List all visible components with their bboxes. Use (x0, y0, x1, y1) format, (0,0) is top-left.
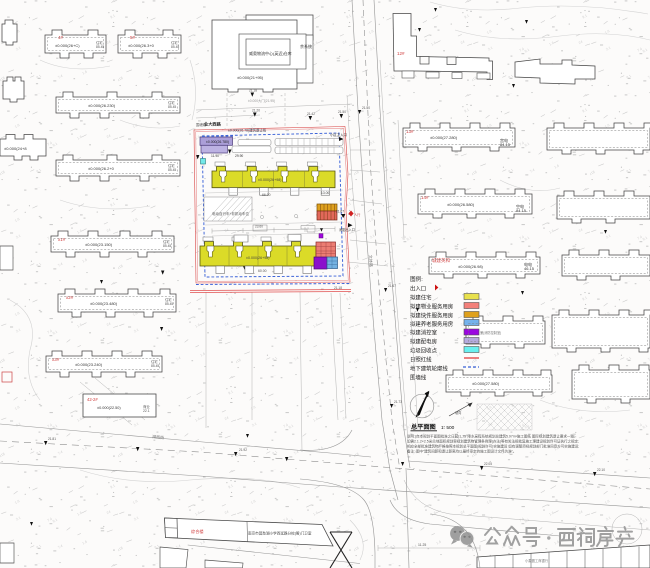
svg-text:拟建消控室: 拟建消控室 (410, 329, 438, 337)
svg-text:21.50: 21.50 (362, 106, 370, 110)
svg-text:垃圾回收点: 垃圾回收点 (410, 347, 438, 355)
svg-text:22.05: 22.05 (484, 462, 492, 466)
svg-text:拟建配电房: 拟建配电房 (410, 338, 437, 346)
svg-text:±0.000大门(21.95): ±0.000大门(21.95) (248, 98, 275, 103)
svg-text:11.90: 11.90 (211, 154, 219, 158)
svg-text:兼(消防控制室): 兼(消防控制室) (480, 330, 501, 335)
svg-text:13#: 13# (406, 129, 414, 134)
svg-text:±0.000(26+98): ±0.000(26+98) (246, 256, 269, 260)
svg-text:±0.000(26.580): ±0.000(26.580) (447, 202, 475, 207)
svg-text:出入口: 出入口 (410, 285, 426, 293)
svg-text:南京市莫愁湖小学西延路分校(筹)门卫室: 南京市莫愁湖小学西延路分校(筹)门卫室 (248, 531, 312, 536)
svg-text:拟建快件服务用房: 拟建快件服务用房 (410, 312, 453, 320)
svg-text:如需2.1.2×2.5米占地面积规划案规划建筑物管理条例理(: 如需2.1.2×2.5米占地面积规划案规划建筑物管理条例理(办法)等有关法规批复… (407, 439, 579, 444)
svg-text:±0.000(26.2+0: ±0.000(26.2+0 (88, 166, 115, 171)
svg-text:x3#: x3# (52, 357, 60, 362)
svg-text:±0.000(27.280): ±0.000(27.280) (430, 135, 458, 140)
svg-text:±0.000(26.780): ±0.000(26.780) (206, 140, 229, 144)
svg-text:±0.000(23.150): ±0.000(23.150) (85, 242, 113, 247)
svg-text:21.67: 21.67 (388, 284, 396, 288)
svg-text:说明:(自本规划平面图批准之日起)1.75°降水高程系统规划: 说明:(自本规划平面图批准之日起)1.75°降水高程系统规划总建筑5.97m²施… (407, 434, 575, 439)
svg-text:12#: 12# (397, 51, 405, 56)
svg-text:余系统: 余系统 (300, 43, 312, 49)
svg-text:地下建筑轮廓线: 地下建筑轮廓线 (410, 365, 448, 373)
svg-text:总平面图: 总平面图 (411, 423, 436, 431)
svg-text:人行: 人行 (354, 212, 361, 217)
svg-text:坡向: 坡向 (455, 410, 461, 415)
svg-text:拟建养老服务用房: 拟建养老服务用房 (410, 320, 453, 328)
svg-text:±0.000(26+C): ±0.000(26+C) (55, 43, 80, 48)
svg-text:±0.000(26.230): ±0.000(26.230) (88, 103, 116, 108)
svg-text:±0.000(26+98): ±0.000(26+98) (258, 178, 281, 182)
svg-text:拟建住宅: 拟建住宅 (410, 294, 432, 302)
svg-text:21.18: 21.18 (249, 89, 257, 93)
svg-text:湖西街: 湖西街 (152, 433, 164, 440)
svg-text:21.18: 21.18 (334, 286, 342, 290)
svg-text:综合楼: 综合楼 (191, 528, 204, 535)
svg-text:66.00: 66.00 (262, 193, 271, 197)
svg-text:22.10: 22.10 (597, 468, 605, 472)
svg-text:±0.000(22.50): ±0.000(22.50) (97, 406, 121, 410)
svg-text:11.25: 11.25 (418, 543, 426, 547)
svg-text:±0.000(26.98): ±0.000(26.98) (458, 264, 484, 269)
svg-text:±0.000(23.480): ±0.000(23.480) (90, 301, 118, 306)
svg-text:商业22.1: 商业22.1 (143, 404, 150, 413)
svg-text:威奥物流中心(英迈)仓库: 威奥物流中心(英迈)仓库 (249, 50, 292, 56)
svg-text:21.42: 21.42 (307, 112, 315, 116)
svg-text:消防出入口: 消防出入口 (339, 227, 355, 232)
svg-text:围墙线: 围墙线 (410, 374, 427, 382)
svg-text:图例:: 图例: (410, 275, 423, 283)
svg-text:±0.000(26.3+0: ±0.000(26.3+0 (128, 43, 155, 48)
svg-text:备注: 图中"建筑间距和退让距离均以最终审定的施工图设计文件: 备注: 图中"建筑间距和退让距离均以最终审定的施工图设计文件为准"。 (407, 449, 516, 454)
svg-text:电动自行车+非机动车位: 电动自行车+非机动车位 (212, 211, 250, 216)
svg-text:x2#: x2# (66, 295, 74, 300)
svg-text:±0.000(24+8: ±0.000(24+8 (4, 146, 27, 151)
svg-text:60.00: 60.00 (258, 269, 267, 273)
svg-text:城建英和: 城建英和 (432, 257, 450, 264)
svg-text:21.73: 21.73 (394, 400, 402, 404)
svg-text:文体路: 文体路 (368, 255, 375, 267)
svg-text:x1#: x1# (58, 237, 66, 242)
svg-text:业大西路: 业大西路 (204, 121, 222, 128)
svg-text:±0.000(23.240): ±0.000(23.240) (75, 362, 103, 367)
svg-text:拟建物业服务用房: 拟建物业服务用房 (410, 303, 453, 311)
svg-text:23.60: 23.60 (255, 225, 263, 229)
svg-text:42-2#: 42-2# (87, 397, 98, 402)
svg-text:±0.000(26.78)建筑退让线: ±0.000(26.78)建筑退让线 (228, 128, 267, 133)
svg-text:21.20: 21.20 (252, 109, 260, 113)
svg-text:14#: 14# (421, 195, 429, 200)
svg-text:小麦圈工商银行: 小麦圈工商银行 (525, 558, 549, 563)
svg-text:29.90: 29.90 (235, 154, 243, 158)
svg-text:21.50: 21.50 (338, 110, 346, 114)
svg-text:±0.000(21+95): ±0.000(21+95) (237, 75, 264, 80)
svg-text:小区主入口: 小区主入口 (330, 132, 347, 137)
svg-text:±0.000(27.580): ±0.000(27.580) (472, 381, 500, 386)
svg-text:相应全部批准建筑物严格按照本规划总平面图(规划许可)实施建设: 相应全部批准建筑物严格按照本规划总平面图(规划许可)实施建设 如有调整须经规划部… (407, 444, 579, 449)
svg-text:13.00: 13.00 (321, 191, 329, 195)
svg-text:21.67: 21.67 (336, 210, 344, 214)
svg-text:21.92: 21.92 (239, 448, 247, 452)
svg-text:1: 500: 1: 500 (441, 425, 455, 431)
svg-text:21.81: 21.81 (48, 437, 56, 441)
